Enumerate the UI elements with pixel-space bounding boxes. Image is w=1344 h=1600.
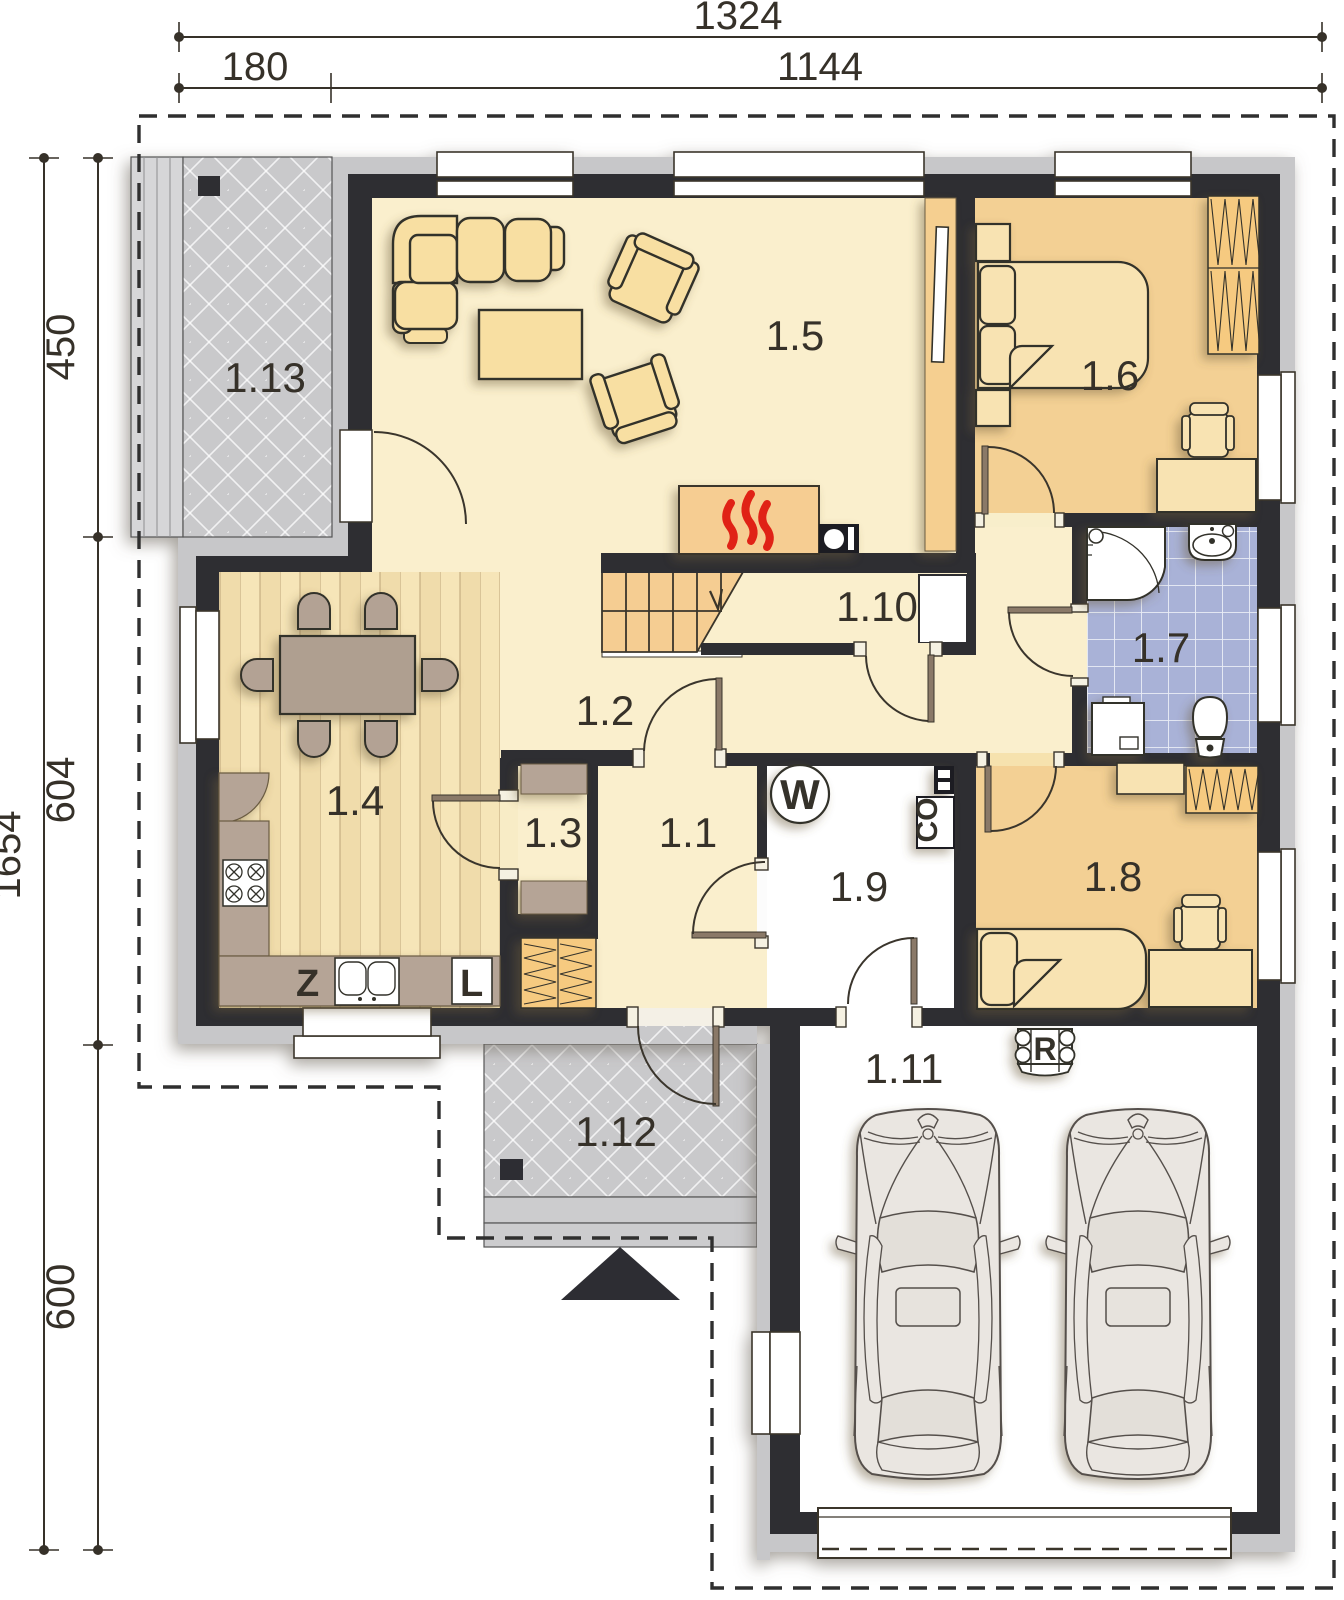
svg-text:1.3: 1.3 bbox=[524, 809, 582, 856]
svg-text:604: 604 bbox=[39, 757, 83, 824]
svg-text:1.8: 1.8 bbox=[1084, 853, 1142, 900]
svg-text:1.5: 1.5 bbox=[766, 312, 824, 359]
svg-text:L: L bbox=[460, 963, 483, 1005]
svg-text:1.1: 1.1 bbox=[659, 809, 717, 856]
svg-text:450: 450 bbox=[39, 314, 83, 381]
svg-text:Z: Z bbox=[296, 963, 319, 1005]
svg-text:1324: 1324 bbox=[694, 0, 783, 38]
svg-text:1.12: 1.12 bbox=[575, 1108, 657, 1155]
svg-text:1654: 1654 bbox=[0, 811, 29, 900]
svg-text:1144: 1144 bbox=[777, 45, 863, 89]
svg-text:R: R bbox=[1033, 1031, 1056, 1067]
svg-text:1.2: 1.2 bbox=[576, 687, 634, 734]
svg-text:1.4: 1.4 bbox=[326, 777, 384, 824]
svg-text:1.10: 1.10 bbox=[836, 583, 918, 630]
svg-text:1.13: 1.13 bbox=[224, 354, 306, 401]
svg-text:CO: CO bbox=[911, 798, 944, 843]
svg-text:1.11: 1.11 bbox=[865, 1045, 944, 1092]
svg-text:1.7: 1.7 bbox=[1132, 624, 1190, 671]
svg-text:600: 600 bbox=[39, 1264, 83, 1331]
svg-text:W: W bbox=[780, 771, 820, 818]
svg-text:1.9: 1.9 bbox=[830, 863, 888, 910]
svg-text:1.6: 1.6 bbox=[1081, 352, 1139, 399]
svg-text:180: 180 bbox=[222, 45, 289, 89]
